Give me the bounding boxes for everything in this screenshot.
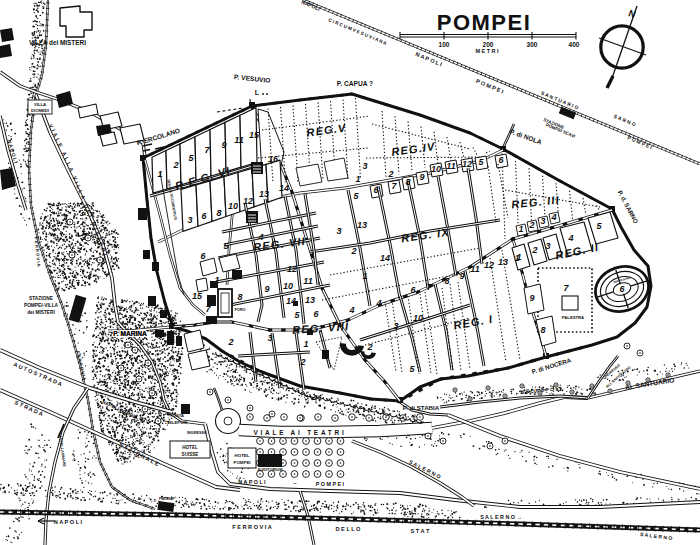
svg-text:SUISSE: SUISSE (182, 452, 199, 457)
svg-text:13: 13 (305, 295, 315, 305)
svg-text:N A P O L I: N A P O L I (238, 479, 266, 485)
svg-text:9: 9 (221, 140, 226, 150)
svg-text:300: 300 (527, 41, 538, 48)
svg-text:M E T R I: M E T R I (475, 48, 499, 54)
svg-text:9: 9 (264, 284, 269, 294)
svg-text:2: 2 (387, 169, 393, 179)
svg-text:8: 8 (444, 276, 449, 286)
svg-text:12: 12 (484, 260, 494, 270)
svg-text:11: 11 (470, 264, 479, 274)
svg-text:400: 400 (569, 41, 580, 48)
svg-text:FORO: FORO (234, 307, 245, 312)
svg-text:3: 3 (545, 241, 550, 251)
svg-text:N A P O L I: N A P O L I (54, 519, 83, 525)
svg-text:11: 11 (234, 135, 243, 145)
svg-text:8: 8 (405, 177, 410, 187)
svg-text:F E R R O V I A: F E R R O V I A (232, 524, 272, 530)
svg-text:3: 3 (540, 216, 545, 226)
svg-text:11: 11 (446, 161, 455, 171)
svg-text:13: 13 (357, 220, 367, 230)
svg-text:1: 1 (514, 253, 519, 263)
svg-text:2: 2 (299, 357, 305, 367)
svg-text:HOTEL: HOTEL (182, 445, 198, 450)
svg-text:1: 1 (157, 169, 162, 179)
svg-text:200: 200 (483, 41, 494, 48)
svg-text:2: 2 (350, 246, 356, 256)
svg-text:12: 12 (243, 196, 253, 206)
svg-text:TELEFONI: TELEFONI (167, 420, 188, 425)
svg-text:3: 3 (336, 226, 341, 236)
svg-text:PALESTRA: PALESTRA (562, 315, 584, 320)
svg-text:100: 100 (439, 41, 450, 48)
svg-text:VIALE AI TEATRI: VIALE AI TEATRI (253, 429, 346, 436)
svg-text:14: 14 (279, 183, 289, 193)
svg-text:VILLA: VILLA (34, 102, 46, 107)
svg-text:14: 14 (286, 296, 296, 306)
svg-text:POSTA: POSTA (170, 413, 184, 418)
svg-text:10: 10 (283, 281, 293, 291)
svg-text:4: 4 (348, 305, 354, 315)
svg-text:2: 2 (366, 342, 372, 352)
svg-text:P O M P E I: P O M P E I (316, 481, 345, 487)
svg-text:14: 14 (380, 253, 390, 263)
svg-text:8: 8 (237, 292, 242, 302)
svg-text:POMPEI: POMPEI (233, 460, 250, 465)
svg-text:10: 10 (413, 313, 423, 323)
svg-text:VILLA dei MISTERI: VILLA dei MISTERI (29, 39, 86, 46)
svg-text:S T A T: S T A T (411, 528, 430, 534)
svg-text:9: 9 (459, 271, 464, 281)
svg-text:P. CAPUA ?: P. CAPUA ? (337, 80, 373, 87)
svg-text:3: 3 (187, 215, 192, 225)
svg-text:AUDITORIUM: AUDITORIUM (258, 467, 283, 472)
svg-text:1: 1 (518, 224, 523, 234)
svg-text:HOTEL: HOTEL (235, 453, 250, 458)
svg-text:2: 2 (528, 220, 534, 230)
svg-text:S A L E R N O →: S A L E R N O → (480, 514, 522, 520)
svg-text:16: 16 (268, 154, 279, 164)
svg-text:1: 1 (355, 174, 360, 184)
svg-text:15: 15 (249, 130, 260, 140)
svg-text:13: 13 (259, 189, 269, 199)
svg-text:INGRESSO: INGRESSO (187, 431, 207, 435)
svg-text:4: 4 (550, 212, 556, 222)
svg-text:STAZIONE: STAZIONE (29, 296, 54, 301)
svg-text:L: L (255, 89, 260, 96)
svg-text:3: 3 (393, 321, 398, 331)
svg-text:POMPEI: POMPEI (437, 10, 532, 35)
svg-text:1: 1 (303, 339, 308, 349)
svg-text:dei MISTERI: dei MISTERI (27, 310, 55, 315)
svg-text:10: 10 (431, 164, 441, 174)
svg-text:2: 2 (172, 160, 178, 170)
svg-text:8: 8 (216, 208, 221, 218)
svg-text:9: 9 (529, 293, 534, 303)
svg-text:D E L L O: D E L L O (336, 526, 362, 532)
svg-text:1: 1 (362, 271, 367, 281)
svg-text:3: 3 (267, 333, 272, 343)
svg-text:DIOMEDI: DIOMEDI (31, 108, 49, 113)
svg-text:P. MARINA: P. MARINA (113, 330, 147, 337)
svg-text:PISCINA: PISCINA (159, 497, 174, 501)
svg-text:9: 9 (419, 172, 424, 182)
svg-text:4: 4 (375, 298, 381, 308)
svg-text:12: 12 (287, 264, 297, 274)
svg-text:4: 4 (567, 233, 573, 243)
svg-text:15: 15 (192, 291, 203, 301)
svg-text:POMPEI-VILLA: POMPEI-VILLA (24, 303, 59, 308)
svg-text:12: 12 (462, 159, 472, 169)
svg-text:2: 2 (227, 337, 233, 347)
svg-text:1: 1 (214, 275, 219, 285)
svg-text:3: 3 (362, 161, 367, 171)
svg-text:11: 11 (303, 276, 312, 286)
svg-text:13: 13 (498, 257, 508, 267)
svg-text:2: 2 (531, 245, 537, 255)
svg-text:10: 10 (228, 201, 238, 211)
svg-text:8: 8 (540, 325, 545, 335)
svg-text:P. di STABIA: P. di STABIA (403, 404, 440, 411)
